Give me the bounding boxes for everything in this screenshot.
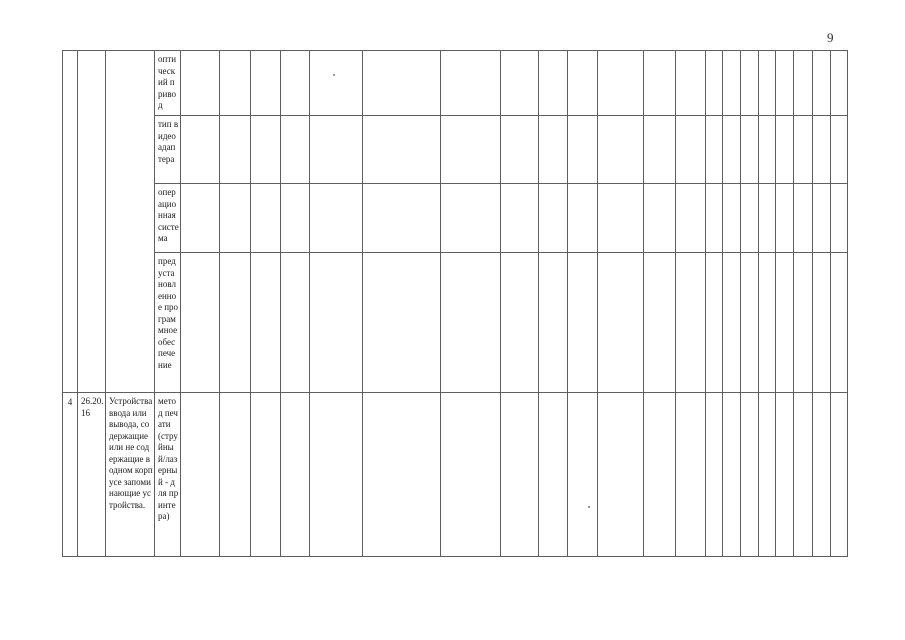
empty-cell (597, 50, 643, 115)
empty-cell (722, 252, 740, 392)
empty-cell (597, 183, 643, 252)
empty-cell (793, 50, 812, 115)
empty-cell (812, 50, 830, 115)
empty-cell (180, 252, 219, 392)
row-index: 4 (62, 392, 77, 556)
empty-cell (362, 50, 440, 115)
empty-cell (538, 115, 567, 183)
empty-cell (705, 392, 722, 556)
empty-cell (440, 50, 500, 115)
empty-cell (740, 115, 758, 183)
empty-cell (219, 115, 250, 183)
empty-cell (280, 50, 309, 115)
empty-cell (180, 50, 219, 115)
empty-cell (705, 50, 722, 115)
empty-cell (180, 183, 219, 252)
empty-cell (775, 50, 793, 115)
empty-cell (309, 115, 362, 183)
empty-cell (309, 183, 362, 252)
empty-cell (180, 392, 219, 556)
empty-cell (675, 392, 705, 556)
empty-cell (758, 115, 775, 183)
characteristic-operating-system: операционная система (154, 183, 180, 252)
empty-cell (440, 183, 500, 252)
scan-speck (588, 506, 590, 508)
empty-cell (280, 183, 309, 252)
empty-cell (812, 392, 830, 556)
empty-cell (740, 50, 758, 115)
empty-cell (705, 183, 722, 252)
empty-cell (830, 252, 847, 392)
empty-cell (643, 252, 675, 392)
empty-cell (675, 252, 705, 392)
empty-cell (440, 115, 500, 183)
empty-cell (775, 252, 793, 392)
document-page: 9 оптический привод тип видеоадаптера оп… (0, 0, 905, 640)
empty-cell (758, 252, 775, 392)
empty-cell (280, 392, 309, 556)
code-column-empty-cell (77, 50, 105, 392)
empty-cell (643, 115, 675, 183)
empty-cell (280, 115, 309, 183)
scan-speck (333, 74, 335, 76)
empty-cell (597, 115, 643, 183)
empty-cell (219, 183, 250, 252)
description-column-empty-cell (105, 50, 154, 392)
empty-cell (250, 183, 280, 252)
item-description: Устройства ввода или вывода, содержащие … (105, 392, 154, 556)
characteristic-preinstalled-software: предустановленное программное обеспечени… (154, 252, 180, 392)
empty-cell (538, 183, 567, 252)
empty-cell (812, 252, 830, 392)
empty-cell (722, 50, 740, 115)
empty-cell (705, 252, 722, 392)
empty-cell (597, 392, 643, 556)
empty-cell (758, 50, 775, 115)
empty-cell (740, 252, 758, 392)
empty-cell (538, 252, 567, 392)
empty-cell (793, 392, 812, 556)
empty-cell (643, 392, 675, 556)
spec-table: оптический привод тип видеоадаптера опер… (62, 50, 848, 557)
empty-cell (675, 50, 705, 115)
empty-cell (538, 392, 567, 556)
empty-cell (309, 392, 362, 556)
empty-cell (793, 252, 812, 392)
empty-cell (567, 183, 597, 252)
empty-cell (793, 183, 812, 252)
empty-cell (722, 115, 740, 183)
empty-cell (309, 252, 362, 392)
empty-cell (740, 183, 758, 252)
empty-cell (643, 183, 675, 252)
empty-cell (362, 183, 440, 252)
empty-cell (309, 50, 362, 115)
index-column-empty-cell (62, 50, 77, 392)
empty-cell (830, 392, 847, 556)
characteristic-print-method: метод печати (струйный/лазерный - для пр… (154, 392, 180, 556)
empty-cell (250, 115, 280, 183)
empty-cell (775, 392, 793, 556)
empty-cell (219, 252, 250, 392)
empty-cell (500, 252, 538, 392)
empty-cell (740, 392, 758, 556)
empty-cell (219, 392, 250, 556)
empty-cell (538, 50, 567, 115)
empty-cell (675, 115, 705, 183)
empty-cell (675, 183, 705, 252)
empty-cell (440, 252, 500, 392)
empty-cell (567, 115, 597, 183)
okpd-code: 26.20.16 (77, 392, 105, 556)
empty-cell (597, 252, 643, 392)
empty-cell (362, 252, 440, 392)
empty-cell (362, 115, 440, 183)
empty-cell (830, 50, 847, 115)
empty-cell (440, 392, 500, 556)
empty-cell (830, 115, 847, 183)
empty-cell (250, 50, 280, 115)
empty-cell (500, 115, 538, 183)
empty-cell (219, 50, 250, 115)
empty-cell (705, 115, 722, 183)
empty-cell (362, 392, 440, 556)
empty-cell (758, 392, 775, 556)
empty-cell (280, 252, 309, 392)
empty-cell (500, 392, 538, 556)
empty-cell (830, 183, 847, 252)
empty-cell (567, 50, 597, 115)
empty-cell (775, 183, 793, 252)
empty-cell (250, 392, 280, 556)
empty-cell (722, 392, 740, 556)
empty-cell (250, 252, 280, 392)
empty-cell (567, 392, 597, 556)
empty-cell (500, 183, 538, 252)
empty-cell (567, 252, 597, 392)
empty-cell (793, 115, 812, 183)
characteristic-video-adapter-type: тип видеоадаптера (154, 115, 180, 183)
empty-cell (180, 115, 219, 183)
empty-cell (643, 50, 675, 115)
empty-cell (775, 115, 793, 183)
empty-cell (722, 183, 740, 252)
empty-cell (812, 115, 830, 183)
empty-cell (812, 183, 830, 252)
page-number: 9 (827, 30, 834, 45)
characteristic-optical-drive: оптический привод (154, 50, 180, 115)
empty-cell (758, 183, 775, 252)
empty-cell (500, 50, 538, 115)
